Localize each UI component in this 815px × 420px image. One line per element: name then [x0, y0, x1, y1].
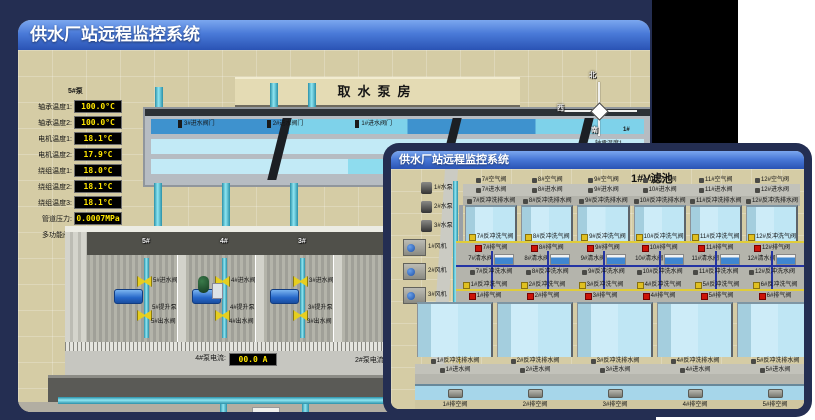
backwash-water-valve[interactable]: 9#反冲洗水阀	[575, 268, 631, 276]
valve-label: 11#反冲洗排水阀	[696, 198, 742, 205]
valve-label: 2#进水阀	[526, 367, 551, 374]
clean-valve-icon[interactable]	[494, 254, 514, 265]
channel-pumps	[415, 388, 804, 398]
sensor-value-display[interactable]: 0.0007MPa	[74, 212, 122, 225]
backwash-pump[interactable]: 2#水泵	[421, 201, 453, 213]
pump5-panel-header: 5#泵	[68, 88, 83, 96]
empty-valve[interactable]: 2#排空阀	[495, 401, 575, 409]
air-valve[interactable]: 12#空气阀	[744, 176, 800, 184]
dosing-tank[interactable]	[198, 276, 209, 293]
valve-label: 11#排气阀	[706, 245, 734, 252]
valve-label: 8#反冲洗水阀	[532, 269, 569, 276]
empty-valve[interactable]: 1#排空阀	[415, 401, 495, 409]
lift-pump-icon[interactable]	[270, 289, 299, 304]
blue-pipe	[456, 265, 804, 267]
drain-pump[interactable]	[575, 388, 655, 398]
scour-bottom-row: 1#反冲洗气阀 2#反冲洗气阀 3#反冲洗气阀 4#反冲洗气阀 5#反冲洗气阀 …	[456, 281, 804, 289]
valve-label: 3#排气阀	[593, 293, 618, 300]
valve-label: 5#排空阀	[763, 402, 788, 409]
valve-label: 1#排气阀	[477, 293, 502, 300]
pump-bays: 5# 5#进水阀 5#提升泵 5#出水阀 4# 4#	[108, 255, 342, 342]
valve-icon[interactable]	[588, 178, 593, 183]
backwash-water-valve[interactable]: 12#反冲洗水阀	[744, 268, 800, 276]
drain-pump[interactable]	[655, 388, 735, 398]
valve-label: 6#反冲洗气阀	[761, 282, 798, 289]
valve-icon[interactable]	[579, 282, 586, 289]
valve-label: 10#排气阀	[650, 245, 678, 252]
drain-valve[interactable]: 7#反冲洗排水阀	[463, 197, 519, 205]
valve-icon[interactable]	[695, 282, 702, 289]
valve-icon[interactable]	[588, 188, 593, 193]
inlet-top-row: 7#进水阀 8#进水阀 9#进水阀 10#进水阀 11#进水阀 12#进水阀	[463, 186, 800, 194]
vent-valve[interactable]: 4#排气阀	[630, 292, 688, 300]
current2-label: 2#泵电流	[355, 357, 384, 365]
air-valve[interactable]: 9#空气阀	[575, 176, 631, 184]
valve-label: 9#排气阀	[595, 245, 620, 252]
pump-icon[interactable]	[421, 201, 432, 213]
sensor-row: 电机温度1: 18.1°C	[26, 132, 122, 145]
pump-label: 3#水泵	[434, 223, 453, 230]
valve-icon[interactable]	[581, 234, 588, 241]
valve-label: 3#排空阀	[603, 402, 628, 409]
outlet-valve-label: 3#出水阀	[307, 319, 332, 326]
scour-valve[interactable]: 6#反冲洗气阀	[746, 281, 804, 289]
valve-icon[interactable]	[699, 178, 704, 183]
valve-icon[interactable]	[643, 178, 648, 183]
valve-label: 3#反冲洗气阀	[587, 282, 624, 289]
filter-cell[interactable]	[497, 302, 573, 357]
backwash-pump[interactable]: 3#水泵	[421, 220, 453, 232]
vent-valve-icon[interactable]	[531, 245, 538, 252]
sensor-value-display[interactable]: 100.0°C	[74, 116, 122, 129]
vent-valve-icon[interactable]	[469, 293, 476, 300]
valve-label: 2#排空阀	[523, 402, 548, 409]
air-valve-row: 7#空气阀 8#空气阀 9#空气阀 10#空气阀 11#空气阀 12#空气阀	[463, 176, 800, 184]
sensor-value-display[interactable]: 18.1°C	[74, 180, 122, 193]
blower-icon[interactable]	[403, 239, 426, 256]
backwash-water-valve[interactable]: 7#反冲洗水阀	[463, 268, 519, 276]
filter-cell[interactable]	[417, 302, 493, 357]
pump-bay: 5# 5#进水阀 5#提升泵 5#出水阀	[108, 255, 186, 342]
valve-label: 4#进水阀	[686, 367, 711, 374]
valve-icon[interactable]	[532, 178, 537, 183]
scour-valve[interactable]: 7#反冲洗气阀	[463, 233, 519, 241]
valve-label: 7#清水阀	[468, 256, 493, 263]
sensor-row: 绕组温度1: 18.0°C	[26, 164, 122, 177]
valve-icon[interactable]	[753, 282, 760, 289]
clean-valve-icon[interactable]	[776, 254, 796, 265]
outlet-valve-label: 5#出水阀	[151, 319, 176, 326]
valve-icon[interactable]	[671, 359, 676, 364]
inlet-valve[interactable]: 3#进水阀	[575, 366, 655, 374]
inlet-valve[interactable]: 2#进水阀	[495, 366, 575, 374]
pump1-panel-header: 1#	[623, 127, 630, 134]
valve-label: 10#反冲洗水阀	[643, 269, 683, 276]
pump-bay: 3# 3#进水阀 3#提升泵 3#出水阀	[264, 255, 342, 342]
intake-valve-label: 2#进水阀门	[273, 121, 304, 128]
inlet-valve-label: 4#进水阀	[231, 278, 256, 285]
backwash-water-valve[interactable]: 10#反冲洗水阀	[632, 268, 688, 276]
building-label: 取水泵房	[337, 84, 417, 99]
valve-icon[interactable]	[637, 282, 644, 289]
valve-label: 11#反冲洗水阀	[699, 269, 739, 276]
valve-icon[interactable]	[532, 188, 537, 193]
valve-label: 12#反冲洗排水阀	[752, 198, 798, 205]
control-panel	[212, 283, 223, 299]
pump5-sensor-panel: 轴承温度1: 100.0°C 轴承温度2: 100.0°C 电机温度1: 18.…	[26, 100, 122, 244]
vent-valve-icon[interactable]	[759, 293, 766, 300]
sensor-label: 电机温度1:	[26, 134, 74, 144]
equipment-cabinet[interactable]	[252, 407, 280, 412]
sensor-value-display[interactable]: 18.1°C	[74, 196, 122, 209]
inlet-valve[interactable]: 11#进水阀	[688, 186, 744, 194]
vent-valve-icon[interactable]	[698, 245, 705, 252]
scour-valve[interactable]: 5#反冲洗气阀	[688, 281, 746, 289]
compass-south: 南	[591, 125, 598, 135]
compass-west: 西	[557, 103, 564, 113]
valve-icon[interactable]	[755, 188, 760, 193]
valve-label: 12#空气阀	[761, 177, 789, 184]
inlet-valve[interactable]: 5#进水阀	[735, 366, 804, 374]
intake-pipe	[155, 87, 163, 109]
valve-label: 9#空气阀	[594, 177, 619, 184]
drain-valve[interactable]: 12#反冲洗排水阀	[744, 197, 800, 205]
valve-icon[interactable]	[431, 359, 436, 364]
valve-icon[interactable]	[463, 282, 470, 289]
drain-valve[interactable]: 11#反冲洗排水阀	[688, 197, 744, 205]
sensor-label: 绕组温度1:	[26, 166, 74, 176]
valve-icon[interactable]	[746, 199, 751, 204]
valve-icon[interactable]	[693, 270, 698, 275]
vent-valve[interactable]: 2#排气阀	[514, 292, 572, 300]
window-titlebar[interactable]: 供水厂站远程监控系统	[391, 151, 804, 169]
valve-icon[interactable]	[760, 368, 765, 373]
sensor-value-display[interactable]: 17.9°C	[74, 148, 122, 161]
valve-label: 2#反冲洗气阀	[529, 282, 566, 289]
blower-icon[interactable]	[403, 263, 426, 280]
vent-bottom-row: 1#排气阀 2#排气阀 3#排气阀 4#排气阀 5#排气阀 6#排气阀	[456, 292, 804, 300]
valve-label: 4#排气阀	[651, 293, 676, 300]
window-title: 供水厂站远程监控系统	[30, 25, 200, 44]
bottom-pools	[415, 302, 804, 357]
valve-label: 9#清水阀	[581, 256, 606, 263]
blower-label: 3#风机	[428, 292, 447, 299]
vent-valve[interactable]: 6#排气阀	[746, 292, 804, 300]
sensor-label: 电机温度2:	[26, 150, 74, 160]
valve-icon[interactable]	[467, 199, 472, 204]
sensor-value-display[interactable]: 100.0°C	[74, 100, 122, 113]
valve-icon[interactable]	[692, 234, 699, 241]
valve-label: 7#进水阀	[482, 187, 507, 194]
blower[interactable]: 2#风机	[403, 263, 447, 280]
drain-pump-icon[interactable]	[688, 389, 703, 398]
blowers: 1#风机 2#风机 3#风机	[403, 239, 447, 311]
intake-pipe	[270, 83, 278, 109]
valve-icon[interactable]	[520, 368, 525, 373]
valve-label: 8#排气阀	[539, 245, 564, 252]
inlet-valve[interactable]: 4#进水阀	[655, 366, 735, 374]
valve-icon[interactable]	[469, 234, 476, 241]
drain-pump-icon[interactable]	[528, 389, 543, 398]
sensor-row: 管道压力: 0.0007MPa	[26, 212, 122, 225]
gate-valve-icon[interactable]	[267, 120, 271, 128]
sensor-label: 绕组温度3:	[26, 198, 74, 208]
inlet-valve-label: 5#进水阀	[153, 278, 178, 285]
inlet-valve[interactable]: 9#进水阀	[575, 186, 631, 194]
valve-label: 6#排气阀	[767, 293, 792, 300]
vent-valve-icon[interactable]	[475, 245, 482, 252]
drain-pump-icon[interactable]	[608, 389, 623, 398]
vent-valve[interactable]: 3#排气阀	[572, 292, 630, 300]
scour-valve[interactable]: 3#反冲洗气阀	[572, 281, 630, 289]
filter-cell[interactable]	[737, 302, 804, 357]
valve-icon[interactable]	[636, 234, 643, 241]
valve-icon[interactable]	[523, 199, 528, 204]
valve-label: 8#空气阀	[538, 177, 563, 184]
drain-pump-icon[interactable]	[448, 389, 463, 398]
sensor-row: 轴承温度2: 100.0°C	[26, 116, 122, 129]
clean-valve-icon[interactable]	[606, 254, 626, 265]
window-title: 供水厂站远程监控系统	[399, 154, 509, 166]
current4-display[interactable]: 00.0 A	[229, 353, 277, 366]
valve-label: 12#反冲洗水阀	[755, 269, 795, 276]
valve-label: 2#排气阀	[535, 293, 560, 300]
intake-valve[interactable]: 2#进水阀门	[267, 120, 304, 128]
valve-label: 4#反冲洗气阀	[645, 282, 682, 289]
drain-pump[interactable]	[735, 388, 804, 398]
valve-label: 9#进水阀	[594, 187, 619, 194]
valve-icon[interactable]	[526, 270, 531, 275]
backwash-drain-top-row: 7#反冲洗排水阀 8#反冲洗排水阀 9#反冲洗排水阀 10#反冲洗排水阀 11#…	[463, 197, 800, 205]
valve-icon[interactable]	[749, 270, 754, 275]
scour-valve[interactable]: 2#反冲洗气阀	[514, 281, 572, 289]
valve-icon[interactable]	[751, 359, 756, 364]
valve-label: 11#进水阀	[705, 187, 733, 194]
riser-pipe	[154, 183, 162, 227]
scour-valve[interactable]: 9#反冲洗气阀	[575, 233, 631, 241]
filter-cell[interactable]	[577, 302, 653, 357]
valve-label: 4#排空阀	[683, 402, 708, 409]
scour-valve[interactable]: 1#反冲洗气阀	[456, 281, 514, 289]
air-valve[interactable]: 7#空气阀	[463, 176, 519, 184]
air-valve[interactable]: 8#空气阀	[519, 176, 575, 184]
backwash-water-top-row: 7#反冲洗水阀 8#反冲洗水阀 9#反冲洗水阀 10#反冲洗水阀 11#反冲洗水…	[463, 268, 800, 276]
inlet-bottom-row: 1#进水阀 2#进水阀 3#进水阀 4#进水阀 5#进水阀 6#进水阀	[415, 366, 804, 374]
gate-valve-icon[interactable]	[178, 120, 182, 128]
empty-valve[interactable]: 3#排空阀	[575, 401, 655, 409]
vent-valve-icon[interactable]	[587, 245, 594, 252]
vent-valve-icon[interactable]	[642, 245, 649, 252]
inlet-valve[interactable]: 8#进水阀	[519, 186, 575, 194]
valve-icon[interactable]	[476, 178, 481, 183]
valve-label: 11#空气阀	[705, 177, 733, 184]
valve-label: 9#反冲洗排水阀	[585, 198, 628, 205]
vent-valve-icon[interactable]	[527, 293, 534, 300]
valve-label: 9#反冲洗水阀	[588, 269, 625, 276]
lift-pump-icon[interactable]	[114, 289, 143, 304]
valve-label: 5#排气阀	[709, 293, 734, 300]
intake-valve-label: 1#进水阀门	[361, 121, 392, 128]
sensor-label: 绕组温度2:	[26, 182, 74, 192]
yellow-line	[456, 289, 804, 291]
drain-pump[interactable]	[415, 388, 495, 398]
riser-pipe	[222, 183, 230, 227]
lift-pump-label: 3#提升泵	[308, 305, 333, 312]
valve-label: 1#进水阀	[446, 367, 471, 374]
valve-icon[interactable]	[634, 199, 639, 204]
window-titlebar[interactable]: 供水厂站远程监控系统	[18, 20, 650, 50]
black-screen-region	[652, 0, 738, 150]
vent-valve-icon[interactable]	[701, 293, 708, 300]
valve-label: 7#反冲洗气阀	[477, 234, 514, 241]
valve-icon[interactable]	[748, 234, 755, 241]
valve-label: 10#进水阀	[649, 187, 677, 194]
scour-valve[interactable]: 12#反冲洗气阀	[744, 233, 800, 241]
bay-label: 5#	[142, 238, 150, 245]
clean-valve-icon[interactable]	[664, 254, 684, 265]
yellow-line	[456, 241, 804, 243]
sensor-row: 绕组温度3: 18.1°C	[26, 196, 122, 209]
inlet-valve-label: 3#进水阀	[309, 278, 334, 285]
bay-divider	[255, 255, 264, 342]
valve-label: 7#空气阀	[482, 177, 507, 184]
valve-label: 8#进水阀	[538, 187, 563, 194]
vent-top-row: 7#排气阀 8#排气阀 9#排气阀 10#排气阀 11#排气阀 12#排气阀	[463, 244, 800, 252]
drain-valve[interactable]: 9#反冲洗排水阀	[575, 197, 631, 205]
clean-valve-row: 7#清水阀 8#清水阀 9#清水阀 10#清水阀 11#清水阀 12#清水阀	[463, 254, 800, 265]
filter-cell[interactable]	[657, 302, 733, 357]
valve-label: 10#反冲洗排水阀	[640, 198, 686, 205]
blower-label: 1#风机	[428, 244, 447, 251]
valve-icon[interactable]	[525, 234, 532, 241]
vent-valve-icon[interactable]	[585, 293, 592, 300]
sensor-label: 轴承温度1:	[26, 102, 74, 112]
scour-top-row: 7#反冲洗气阀 8#反冲洗气阀 9#反冲洗气阀 10#反冲洗气阀 11#反冲洗气…	[463, 233, 800, 241]
sensor-row: 绕组温度2: 18.1°C	[26, 180, 122, 193]
valve-icon[interactable]	[699, 188, 704, 193]
outlet-valve-label: 4#出水阀	[229, 319, 254, 326]
drain-valve[interactable]: 10#反冲洗排水阀	[632, 197, 688, 205]
valve-icon[interactable]	[680, 368, 685, 373]
air-valve[interactable]: 11#空气阀	[688, 176, 744, 184]
valve-label: 8#反冲洗排水阀	[529, 198, 572, 205]
vent-valve-icon[interactable]	[754, 245, 761, 252]
valve-label: 5#反冲洗气阀	[703, 282, 740, 289]
sensor-label: 管道压力:	[26, 214, 74, 224]
valve-icon[interactable]	[476, 188, 481, 193]
valve-icon[interactable]	[579, 199, 584, 204]
valve-label: 3#进水阀	[606, 367, 631, 374]
scour-valve[interactable]: 8#反冲洗气阀	[519, 233, 575, 241]
inlet-valve[interactable]: 7#进水阀	[463, 186, 519, 194]
deck-band	[415, 374, 804, 384]
valve-icon[interactable]	[511, 359, 516, 364]
intake-valve[interactable]: 3#进水阀门	[178, 120, 215, 128]
blower-label: 2#风机	[428, 268, 447, 275]
valve-icon[interactable]	[591, 359, 596, 364]
scour-valve[interactable]: 10#反冲洗气阀	[632, 233, 688, 241]
inlet-valve[interactable]: 10#进水阀	[632, 186, 688, 194]
clean-valve-icon[interactable]	[550, 254, 570, 265]
clean-valve-icon[interactable]	[720, 254, 740, 265]
valve-icon[interactable]	[440, 368, 445, 373]
bay-label: 4#	[220, 238, 228, 245]
bay-divider	[177, 255, 186, 342]
compass: 北 西 南	[553, 72, 645, 142]
pump-icon[interactable]	[421, 220, 432, 232]
inlet-valve[interactable]: 12#进水阀	[744, 186, 800, 194]
valve-label: 10#反冲洗气阀	[644, 234, 684, 241]
valve-icon[interactable]	[600, 368, 605, 373]
empty-valve[interactable]: 5#排空阀	[735, 401, 804, 409]
backwash-water-valve[interactable]: 8#反冲洗水阀	[519, 268, 575, 276]
valve-label: 1#排空阀	[443, 402, 468, 409]
drain-valve[interactable]: 8#反冲洗排水阀	[519, 197, 575, 205]
air-valve[interactable]: 10#空气阀	[632, 176, 688, 184]
pump-label: 2#水泵	[434, 204, 453, 211]
blower[interactable]: 1#风机	[403, 239, 447, 256]
valve-label: 12#反冲洗气阀	[756, 234, 796, 241]
valve-icon[interactable]	[643, 188, 648, 193]
intake-valve[interactable]: 1#进水阀门	[355, 120, 392, 128]
vent-valve-icon[interactable]	[643, 293, 650, 300]
drain-pump[interactable]	[495, 388, 575, 398]
valve-icon[interactable]	[637, 270, 642, 275]
compass-north: 北	[589, 70, 596, 80]
valve-label: 11#反冲洗气阀	[700, 234, 740, 241]
scour-valve[interactable]: 11#反冲洗气阀	[688, 233, 744, 241]
valve-label: 9#反冲洗气阀	[589, 234, 626, 241]
empty-valve[interactable]: 4#排空阀	[655, 401, 735, 409]
backwash-water-valve[interactable]: 11#反冲洗水阀	[688, 268, 744, 276]
valve-icon[interactable]	[582, 270, 587, 275]
lift-pump-label: 5#提升泵	[152, 305, 177, 312]
branch-pipe	[302, 404, 309, 412]
vent-valve[interactable]: 5#排气阀	[688, 292, 746, 300]
valve-label: 7#反冲洗水阀	[476, 269, 513, 276]
pump-icon[interactable]	[421, 182, 432, 194]
valve-label: 7#反冲洗排水阀	[473, 198, 516, 205]
pump-label: 1#水泵	[434, 185, 453, 192]
sensor-value-display[interactable]: 18.0°C	[74, 164, 122, 177]
valve-icon[interactable]	[690, 199, 695, 204]
intake-valve-row: 3#进水阀门 2#进水阀门 1#进水阀门	[178, 120, 508, 128]
sensor-value-display[interactable]: 18.1°C	[74, 132, 122, 145]
valve-label: 8#清水阀	[524, 256, 549, 263]
valve-label: 5#进水阀	[766, 367, 791, 374]
vent-valve[interactable]: 1#排气阀	[456, 292, 514, 300]
scour-valve[interactable]: 4#反冲洗气阀	[630, 281, 688, 289]
inlet-valve[interactable]: 1#进水阀	[415, 366, 495, 374]
valve-icon[interactable]	[755, 178, 760, 183]
sensor-label: 轴承温度2:	[26, 118, 74, 128]
main-pipe	[58, 397, 398, 404]
sensor-row: 轴承温度1: 100.0°C	[26, 100, 122, 113]
current4-label: 4#泵电流:	[178, 355, 226, 363]
intake-pipe	[308, 83, 316, 109]
pump-bay: 4# 4#进水阀 4#提升泵 4#出水阀	[186, 255, 264, 342]
valve-icon[interactable]	[470, 270, 475, 275]
bay-pipe	[300, 258, 305, 338]
gate-valve-icon[interactable]	[355, 120, 359, 128]
valve-label: 12#排气阀	[762, 245, 790, 252]
valve-label: 7#排气阀	[483, 245, 508, 252]
backwash-pump[interactable]: 1#水泵	[421, 182, 453, 194]
valve-icon[interactable]	[521, 282, 528, 289]
valve-label: 12#进水阀	[761, 187, 789, 194]
drain-pump-icon[interactable]	[768, 389, 783, 398]
empty-valve-row: 1#排空阀 2#排空阀 3#排空阀 4#排空阀 5#排空阀 6#排空阀	[415, 401, 804, 409]
